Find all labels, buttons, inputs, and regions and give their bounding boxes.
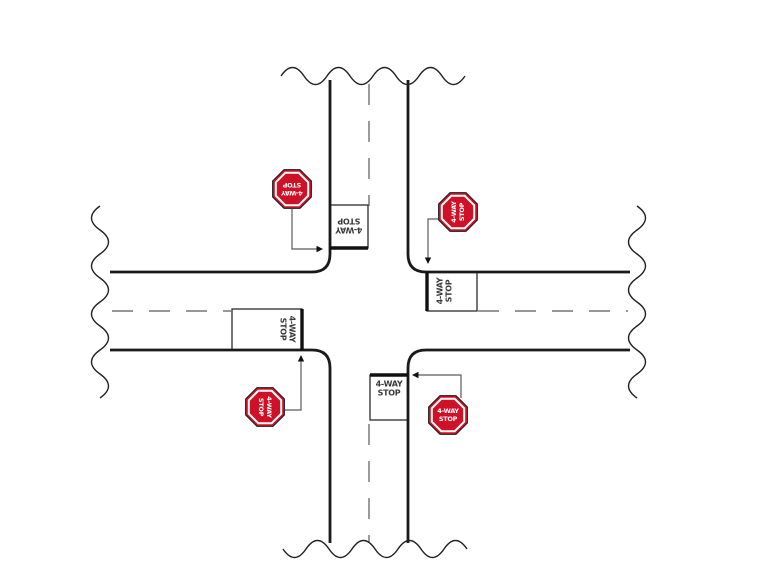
leader-arrow-northeast (425, 258, 431, 265)
stop-sign-southwest-line2: STOP (257, 398, 265, 417)
road-edge-southeast (408, 350, 630, 543)
stop-sign-northeast-line2: STOP (458, 202, 466, 221)
stop-sign-northeast: 4-WAY STOP (439, 193, 478, 232)
road-edge-southwest (110, 350, 330, 543)
centerlines (112, 84, 628, 542)
stop-sign-northwest: 4-WAY STOP (273, 170, 312, 209)
break-line-right (629, 206, 646, 398)
stop-bars (302, 248, 427, 375)
stop-sign-southwest: 4-WAY STOP (246, 388, 285, 427)
stop-line-label-south-line1: 4-WAY (376, 380, 403, 389)
stop-sign-southeast: 4-WAY STOP (429, 396, 468, 435)
leader-arrow-southwest (298, 355, 304, 362)
leader-line-southwest (285, 360, 301, 410)
leader-line-northeast (428, 219, 438, 259)
stop-line-label-west-line2: STOP (279, 318, 288, 341)
leader-line-southeast (417, 375, 461, 398)
stop-sign-northwest-line2: STOP (282, 181, 301, 189)
leader-arrow-southeast (412, 372, 419, 378)
stop-line-label-east-line1: 4-WAY (436, 277, 445, 304)
stop-sign-southeast-line1: 4-WAY (437, 407, 459, 415)
stop-line-label-east-line2: STOP (445, 279, 454, 302)
stop-sign-southeast-line2: STOP (439, 415, 458, 423)
stop-line-label-south-line2: STOP (378, 389, 401, 398)
break-line-top (281, 68, 465, 85)
leader-line-northwest (292, 209, 318, 249)
stop-line-label-north: 4-WAY STOP (335, 217, 362, 235)
stop-sign-southwest-line1: 4-WAY (265, 396, 273, 418)
intersection-diagram-canvas: 4-WAY STOP 4-WAY STOP 4-WAY STOP 4-WAY S… (0, 0, 780, 586)
stop-line-label-south: 4-WAY STOP (376, 380, 403, 398)
stop-sign-northwest-line1: 4-WAY (281, 189, 303, 197)
leader-arrow-northwest (317, 246, 324, 252)
stop-line-label-west: 4-WAY STOP (279, 316, 297, 343)
stop-line-label-north-line2: STOP (337, 217, 360, 226)
road-edge-northeast (408, 80, 630, 272)
stop-line-label-east: 4-WAY STOP (436, 277, 454, 304)
stop-line-label-north-line1: 4-WAY (335, 226, 362, 235)
break-line-bottom (283, 541, 467, 558)
four-way-stop-intersection-diagram: 4-WAY STOP 4-WAY STOP 4-WAY STOP 4-WAY S… (0, 0, 780, 586)
stop-line-label-west-line1: 4-WAY (288, 316, 297, 343)
break-line-left (92, 206, 109, 398)
stop-sign-northeast-line1: 4-WAY (450, 201, 458, 223)
